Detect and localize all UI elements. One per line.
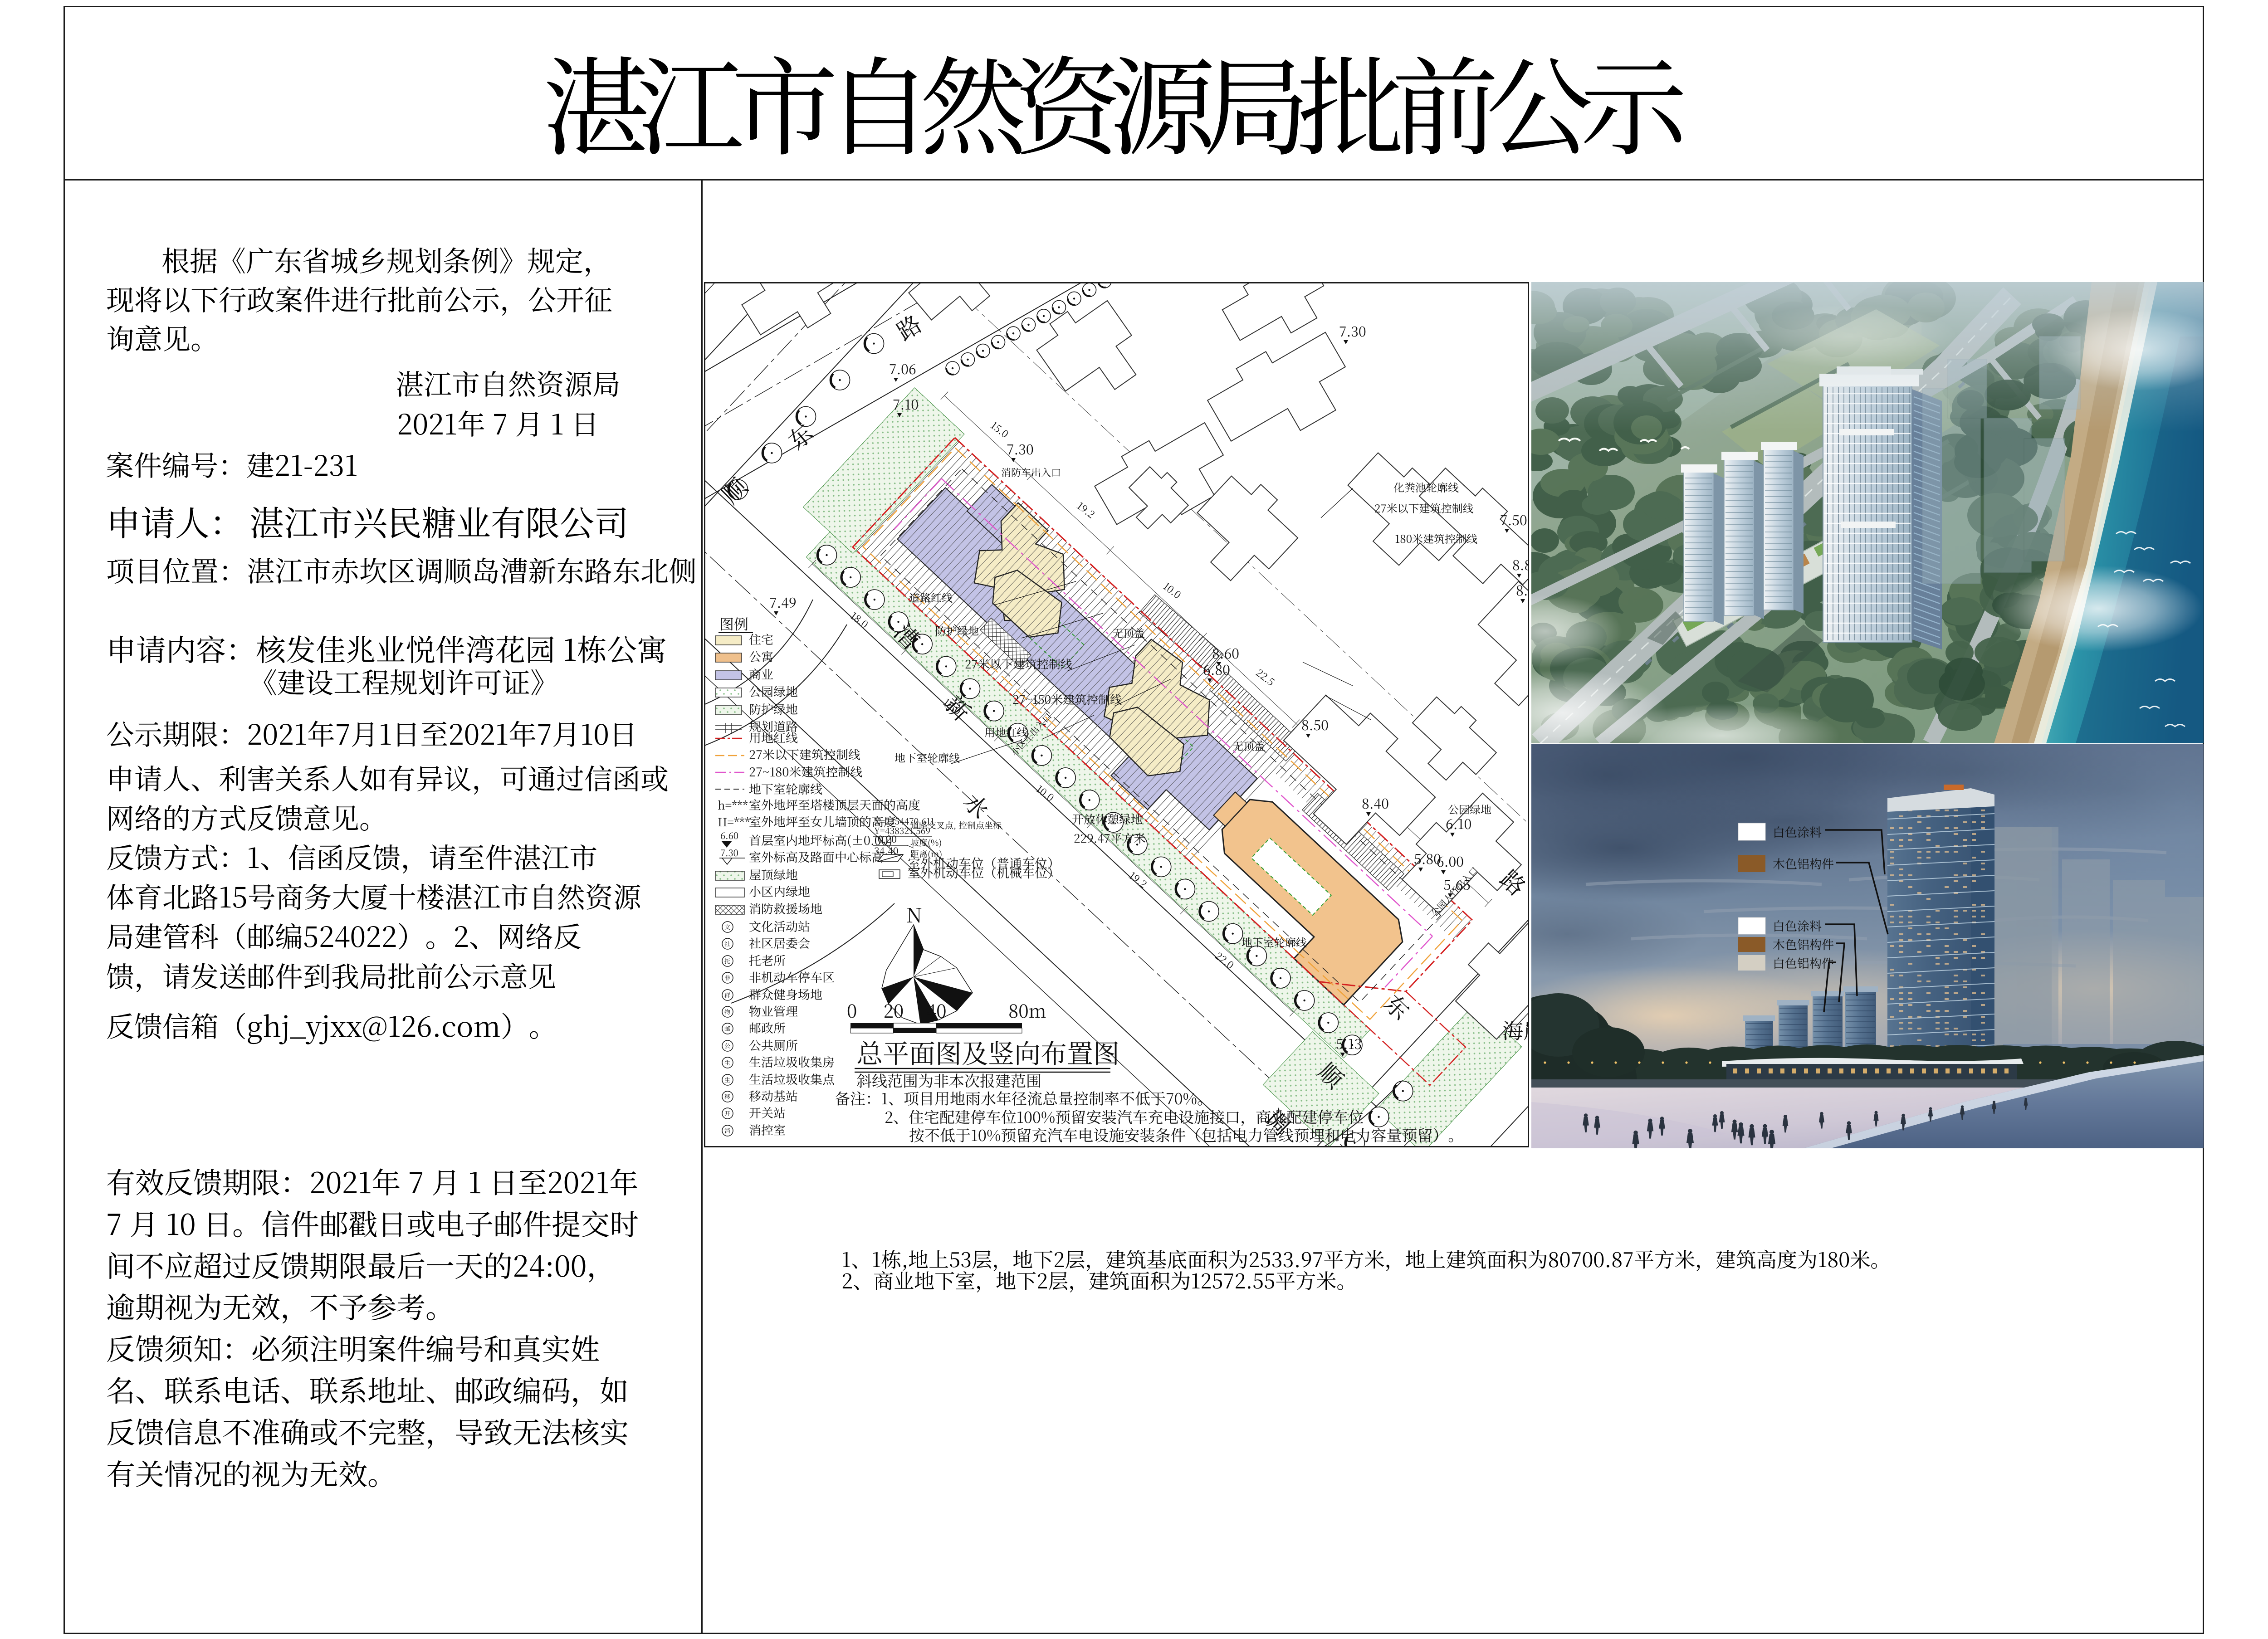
svg-text:20: 20 <box>884 997 904 1023</box>
svg-text:生: 生 <box>724 1058 730 1067</box>
svg-text:防护绿地: 防护绿地 <box>749 700 798 717</box>
svg-text:6.60: 6.60 <box>720 829 738 842</box>
svg-text:7.50: 7.50 <box>1500 509 1527 529</box>
svg-text:按不低于10%预留充汽车电设施安装条件（包括电力管线预埋和电: 按不低于10%预留充汽车电设施安装条件（包括电力管线预埋和电力容量预留）。 <box>909 1123 1463 1146</box>
svg-text:8.50: 8.50 <box>1301 714 1329 734</box>
svg-text:小区内绿地: 小区内绿地 <box>749 882 810 900</box>
svg-text:托: 托 <box>724 956 730 965</box>
svg-text:总平面图及竖向布置图: 总平面图及竖向布置图 <box>856 1033 1119 1071</box>
svg-text:7.10: 7.10 <box>893 394 919 414</box>
svg-text:商业: 商业 <box>749 665 773 683</box>
svg-text:80m: 80m <box>1008 997 1046 1023</box>
svg-text:27米以下建筑控制线: 27米以下建筑控制线 <box>749 745 860 763</box>
svg-text:公: 公 <box>724 1041 730 1050</box>
svg-text:木色铝构件: 木色铝构件 <box>1773 854 1834 872</box>
svg-text:地下室轮廓线: 地下室轮廓线 <box>749 780 822 797</box>
svg-text:物: 物 <box>724 1007 730 1016</box>
svg-text:消防救援场地: 消防救援场地 <box>749 899 822 917</box>
svg-text:h=***: h=*** <box>718 797 748 813</box>
svg-text:移: 移 <box>724 1092 730 1101</box>
svg-text:0: 0 <box>847 997 857 1023</box>
svg-text:5.13: 5.13 <box>1336 1033 1362 1053</box>
svg-text:公园绿地: 公园绿地 <box>1448 801 1491 817</box>
svg-text:托老所: 托老所 <box>749 951 786 969</box>
svg-text:用地红线: 用地红线 <box>749 728 798 746</box>
svg-text:27~180米建筑控制线: 27~180米建筑控制线 <box>749 762 862 780</box>
svg-text:文化活动站: 文化活动站 <box>749 917 810 935</box>
svg-text:地下室轮廓线: 地下室轮廓线 <box>1242 934 1307 950</box>
svg-text:室外机动车位（机械车位）: 室外机动车位（机械车位） <box>908 863 1060 882</box>
svg-text:社区居委会: 社区居委会 <box>749 934 810 951</box>
svg-text:群: 群 <box>724 990 730 999</box>
svg-text:生活垃圾收集点: 生活垃圾收集点 <box>749 1070 835 1088</box>
svg-text:生: 生 <box>724 1075 730 1084</box>
svg-text:公园绿地: 公园绿地 <box>749 682 798 700</box>
svg-text:道路交叉点, 控制点坐标: 道路交叉点, 控制点坐标 <box>910 819 1002 831</box>
svg-text:室外标高及路面中心标高: 室外标高及路面中心标高 <box>749 848 884 865</box>
svg-text:白色涂料: 白色涂料 <box>1773 917 1822 934</box>
svg-text:物业管理: 物业管理 <box>749 1002 798 1019</box>
svg-text:住宅: 住宅 <box>749 630 773 648</box>
svg-text:8.80: 8.80 <box>1512 554 1529 574</box>
svg-text:公寓: 公寓 <box>749 647 773 665</box>
svg-text:道路红线: 道路红线 <box>909 589 953 605</box>
svg-text:公共厕所: 公共厕所 <box>749 1036 798 1054</box>
svg-text:木色铝构件: 木色铝构件 <box>1773 935 1834 953</box>
svg-text:无顶盖: 无顶盖 <box>1112 624 1145 640</box>
svg-text:生活垃圾收集房: 生活垃圾收集房 <box>749 1053 835 1070</box>
svg-text:非机动车停车区: 非机动车停车区 <box>749 968 835 985</box>
svg-text:40: 40 <box>926 997 946 1023</box>
svg-text:8.80: 8.80 <box>1516 580 1529 600</box>
svg-text:防护绿地: 防护绿地 <box>935 622 979 638</box>
svg-text:N: N <box>906 899 922 928</box>
svg-text:坡度(%): 坡度(%) <box>910 836 942 849</box>
svg-text:H=***: H=*** <box>718 814 750 830</box>
svg-text:180米建筑控制线: 180米建筑控制线 <box>1395 530 1477 546</box>
svg-text:27米以下建筑控制线: 27米以下建筑控制线 <box>1374 500 1474 516</box>
svg-text:室外地坪至塔楼顶层天面的高度: 室外地坪至塔楼顶层天面的高度 <box>749 795 920 813</box>
svg-text:白色涂料: 白色涂料 <box>1773 823 1822 840</box>
svg-text:群众健身场地: 群众健身场地 <box>749 985 822 1003</box>
svg-text:海岸: 海岸 <box>1502 1015 1529 1045</box>
svg-text:消控室: 消控室 <box>749 1121 786 1138</box>
svg-text:7.30: 7.30 <box>720 846 738 859</box>
svg-text:图例: 图例 <box>719 613 748 634</box>
svg-text:7.30: 7.30 <box>1007 439 1034 459</box>
svg-text:邮: 邮 <box>724 1024 730 1033</box>
svg-text:地下室轮廓线: 地下室轮廓线 <box>894 749 960 765</box>
svg-text:8.40: 8.40 <box>1362 793 1389 813</box>
svg-text:邮政所: 邮政所 <box>749 1019 786 1036</box>
svg-text:消: 消 <box>724 1126 730 1135</box>
svg-text:7.30: 7.30 <box>1339 321 1366 341</box>
svg-text:移动基站: 移动基站 <box>749 1087 798 1104</box>
svg-text:开关站: 开关站 <box>749 1103 786 1121</box>
svg-text:消防车出入口: 消防车出入口 <box>1001 465 1061 479</box>
svg-text:6.80: 6.80 <box>1203 659 1230 679</box>
svg-text:开: 开 <box>724 1109 730 1117</box>
svg-text:27~150米建筑控制线: 27~150米建筑控制线 <box>1012 691 1122 707</box>
svg-text:229.47平方米: 229.47平方米 <box>1074 829 1146 846</box>
svg-text:屋顶绿地: 屋顶绿地 <box>749 865 798 883</box>
svg-text:27米以下建筑控制线: 27米以下建筑控制线 <box>965 655 1072 672</box>
svg-text:7.49: 7.49 <box>769 592 797 612</box>
svg-text:化粪池轮廓线: 化粪池轮廓线 <box>1393 479 1459 495</box>
svg-text:7.06: 7.06 <box>889 358 916 378</box>
svg-text:社: 社 <box>724 939 730 948</box>
svg-text:非: 非 <box>724 973 730 982</box>
svg-text:文: 文 <box>724 922 730 931</box>
svg-text:无顶盖: 无顶盖 <box>1232 737 1265 753</box>
svg-text:开放休憩绿地: 开放休憩绿地 <box>1072 810 1143 827</box>
svg-text:5.80: 5.80 <box>1414 848 1441 868</box>
svg-text:白色铝构件: 白色铝构件 <box>1773 954 1834 971</box>
svg-text:首层室内地坪标高(±0.00): 首层室内地坪标高(±0.00) <box>749 831 893 849</box>
